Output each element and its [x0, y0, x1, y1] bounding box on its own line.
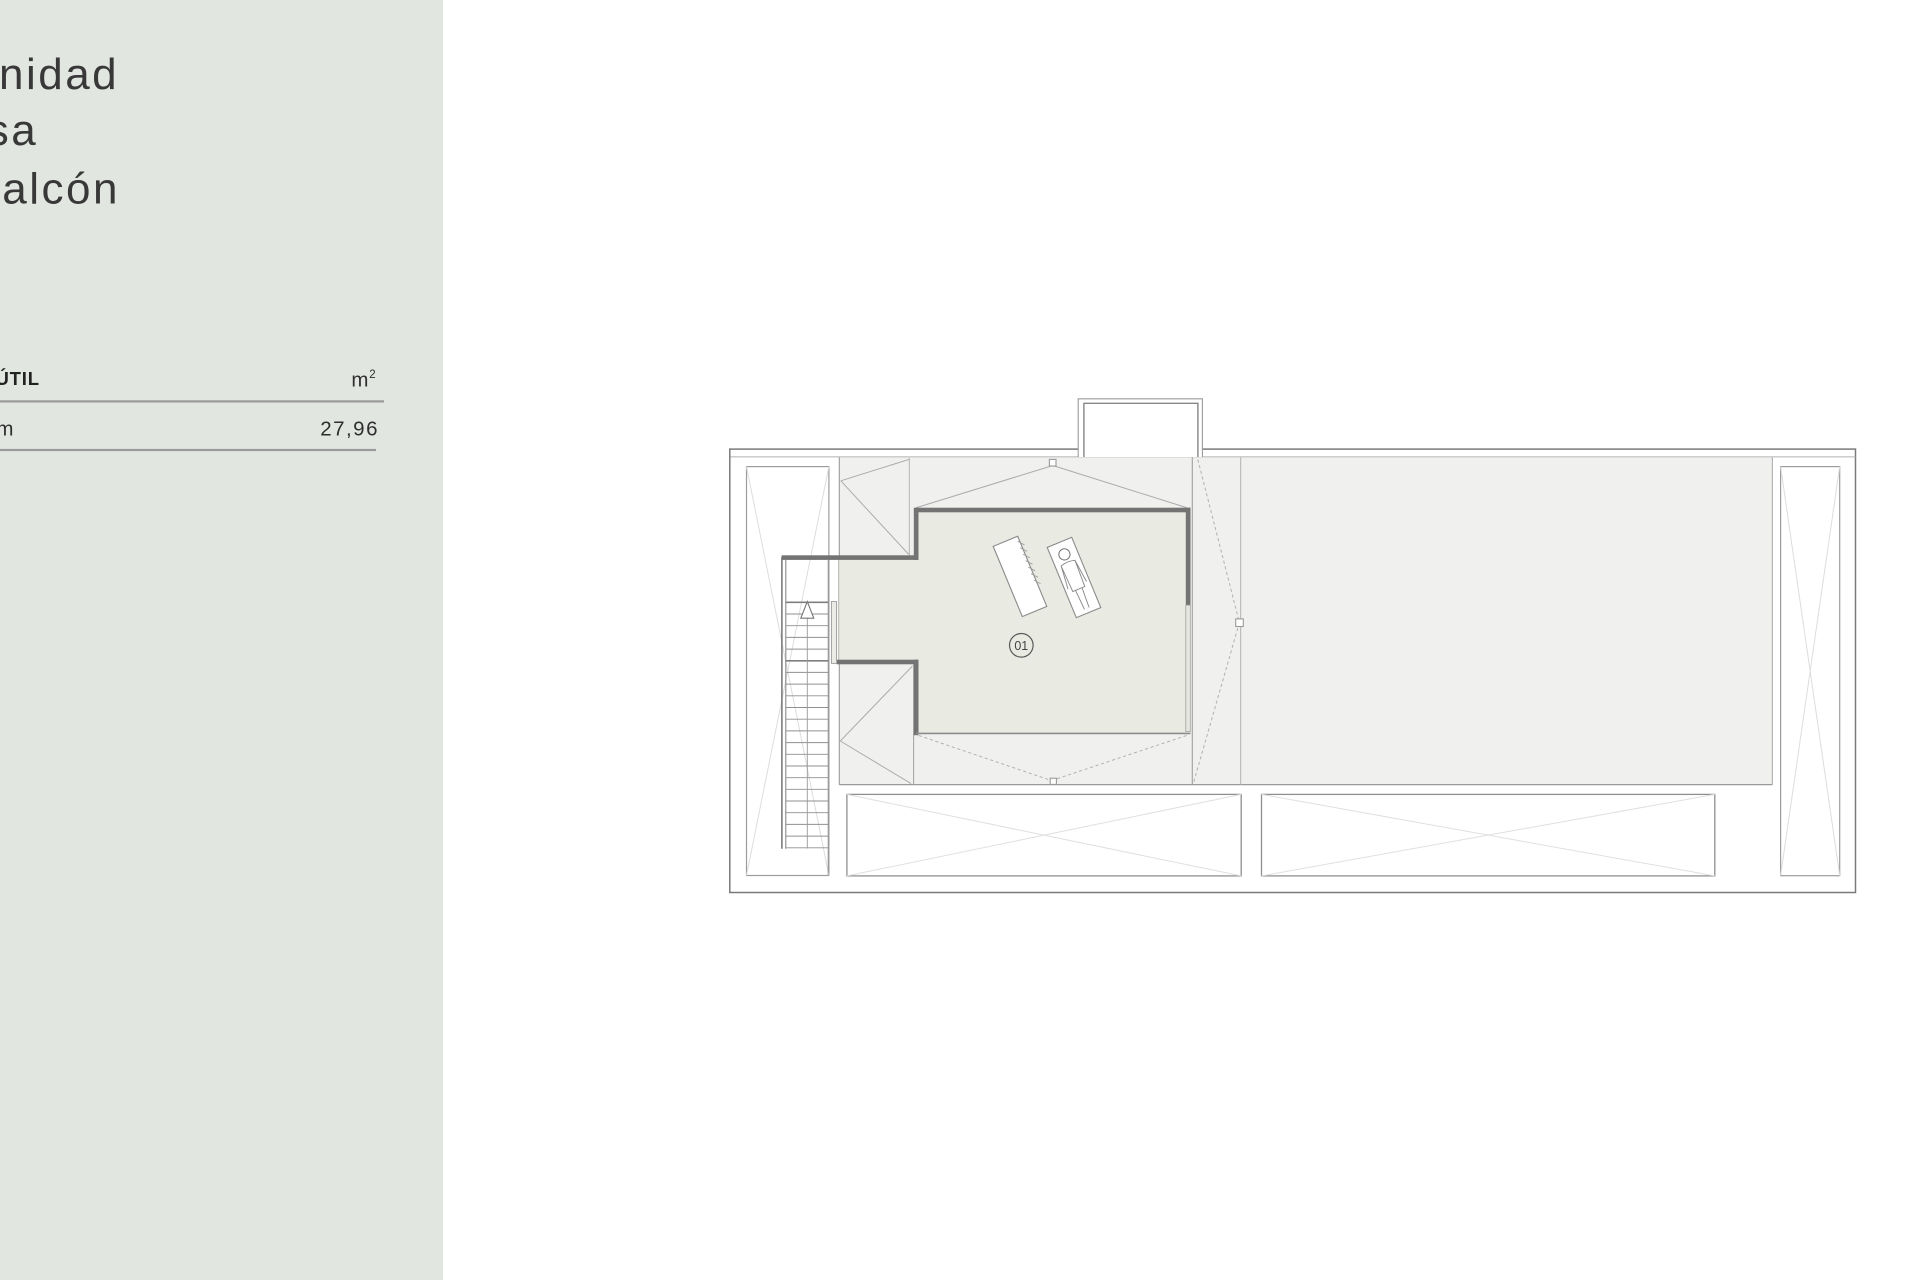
- svg-text:Comunidad: Comunidad: [0, 50, 119, 99]
- svg-text:Casa: Casa: [0, 106, 38, 155]
- svg-text:27,96: 27,96: [320, 417, 379, 440]
- svg-text:2: 2: [369, 369, 375, 381]
- svg-text:01: 01: [1014, 639, 1028, 653]
- svg-text:m: m: [351, 369, 368, 392]
- svg-text:Balcón: Balcón: [0, 165, 120, 214]
- svg-text:SUPERFICIE ÚTIL: SUPERFICIE ÚTIL: [0, 368, 40, 389]
- svg-text:Solárium: Solárium: [0, 417, 14, 440]
